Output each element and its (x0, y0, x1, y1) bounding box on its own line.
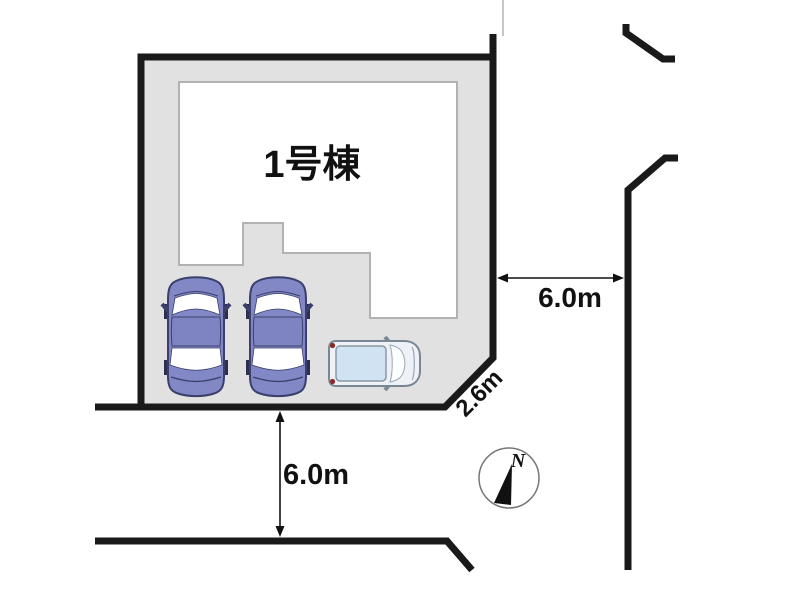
compass-north-label: N (510, 450, 527, 472)
van-roof-panel (336, 346, 386, 381)
sedan-1 (162, 277, 230, 396)
dimension-label-right-road: 6.0m (538, 282, 602, 313)
minivan (329, 337, 420, 390)
sedan-roof (253, 317, 303, 346)
site-plan-canvas: 1号棟 (0, 0, 800, 600)
sedan-rear-window (170, 348, 222, 370)
compass: N (479, 448, 539, 508)
bottom-road-edge-line (95, 541, 472, 570)
right-road-upper-edge-line (626, 24, 675, 59)
arrowhead-right (613, 274, 624, 283)
dimension-right-road: 6.0m (497, 274, 624, 314)
right-road-edge-line (628, 158, 678, 570)
arrowhead-left (497, 274, 508, 283)
sedan-rear-window (252, 348, 304, 370)
arrowhead-top (276, 411, 285, 422)
dimension-bottom-road: 6.0m (276, 411, 350, 537)
van-tail-light (330, 379, 335, 384)
van-tail-light (330, 343, 335, 348)
sedan-2 (244, 277, 312, 396)
dimension-label-bottom-road: 6.0m (283, 459, 349, 491)
sedan-roof (171, 317, 221, 346)
site-plan-svg: 1号棟 (0, 0, 800, 600)
arrowhead-bottom (276, 526, 285, 537)
building-label: 1号棟 (263, 144, 361, 186)
